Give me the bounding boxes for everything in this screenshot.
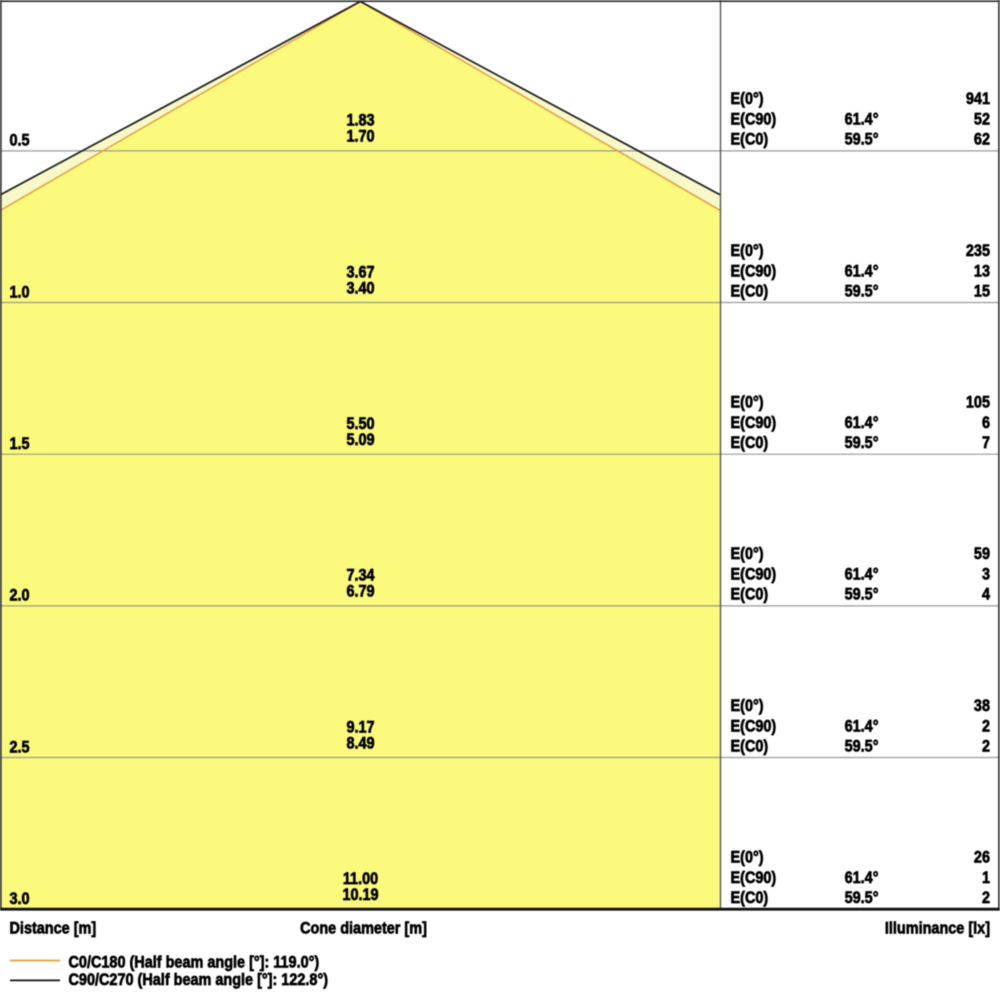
- svg-text:4: 4: [982, 586, 990, 604]
- svg-text:15: 15: [974, 282, 990, 300]
- svg-text:E(C0): E(C0): [731, 282, 769, 300]
- svg-text:E(0°): E(0°): [731, 242, 764, 260]
- svg-text:E(C0): E(C0): [731, 737, 769, 755]
- svg-text:Distance [m]: Distance [m]: [10, 919, 97, 937]
- svg-text:2: 2: [982, 737, 990, 755]
- svg-text:8.49: 8.49: [346, 734, 374, 752]
- svg-text:13: 13: [974, 262, 990, 280]
- svg-text:E(C90): E(C90): [731, 262, 777, 280]
- svg-text:62: 62: [974, 131, 990, 149]
- svg-text:0.5: 0.5: [10, 132, 30, 150]
- svg-text:59.5°: 59.5°: [845, 282, 879, 300]
- svg-text:7: 7: [982, 434, 990, 452]
- svg-text:2: 2: [982, 889, 990, 907]
- svg-text:6: 6: [982, 414, 990, 432]
- svg-text:61.4°: 61.4°: [845, 414, 879, 432]
- svg-text:1: 1: [982, 869, 990, 887]
- svg-text:59.5°: 59.5°: [845, 889, 879, 907]
- svg-text:E(0°): E(0°): [731, 697, 764, 715]
- svg-text:E(C90): E(C90): [731, 869, 777, 887]
- svg-text:E(C90): E(C90): [731, 111, 777, 129]
- svg-text:59.5°: 59.5°: [845, 434, 879, 452]
- svg-text:105: 105: [966, 393, 990, 411]
- svg-text:941: 941: [966, 90, 990, 108]
- svg-text:59: 59: [974, 545, 990, 563]
- svg-text:52: 52: [974, 111, 990, 129]
- svg-text:59.5°: 59.5°: [845, 737, 879, 755]
- svg-text:6.79: 6.79: [346, 583, 374, 601]
- svg-text:E(C0): E(C0): [731, 889, 769, 907]
- svg-text:E(0°): E(0°): [731, 545, 764, 563]
- svg-text:5.09: 5.09: [346, 431, 374, 449]
- svg-text:1.0: 1.0: [10, 283, 30, 301]
- svg-text:Illuminance [lx]: Illuminance [lx]: [885, 919, 990, 937]
- svg-text:2: 2: [982, 717, 990, 735]
- svg-text:38: 38: [974, 697, 990, 715]
- svg-text:E(C90): E(C90): [731, 717, 777, 735]
- svg-text:61.4°: 61.4°: [845, 262, 879, 280]
- svg-text:61.4°: 61.4°: [845, 717, 879, 735]
- svg-text:E(0°): E(0°): [731, 848, 764, 866]
- svg-text:235: 235: [966, 242, 990, 260]
- svg-text:C0/C180 (Half beam angle [°]:: C0/C180 (Half beam angle [°]: 119.0°): [69, 953, 320, 971]
- svg-text:2.5: 2.5: [10, 738, 30, 756]
- svg-text:61.4°: 61.4°: [845, 566, 879, 584]
- svg-text:59.5°: 59.5°: [845, 131, 879, 149]
- svg-text:E(0°): E(0°): [731, 90, 764, 108]
- svg-text:1.70: 1.70: [346, 128, 374, 146]
- svg-text:E(C0): E(C0): [731, 434, 769, 452]
- svg-text:C90/C270 (Half beam angle [°]:: C90/C270 (Half beam angle [°]: 122.8°): [69, 971, 329, 989]
- svg-text:3: 3: [982, 566, 990, 584]
- svg-text:26: 26: [974, 848, 990, 866]
- svg-text:59.5°: 59.5°: [845, 586, 879, 604]
- svg-text:2.0: 2.0: [10, 587, 30, 605]
- svg-text:Cone diameter [m]: Cone diameter [m]: [300, 919, 427, 937]
- svg-text:61.4°: 61.4°: [845, 111, 879, 129]
- svg-text:61.4°: 61.4°: [845, 869, 879, 887]
- svg-text:E(C90): E(C90): [731, 566, 777, 584]
- svg-text:E(C0): E(C0): [731, 131, 769, 149]
- svg-text:E(0°): E(0°): [731, 393, 764, 411]
- svg-text:3.40: 3.40: [346, 279, 374, 297]
- svg-text:10.19: 10.19: [342, 886, 378, 904]
- svg-text:E(C90): E(C90): [731, 414, 777, 432]
- svg-text:E(C0): E(C0): [731, 586, 769, 604]
- svg-text:1.5: 1.5: [10, 435, 30, 453]
- svg-text:3.0: 3.0: [10, 890, 30, 908]
